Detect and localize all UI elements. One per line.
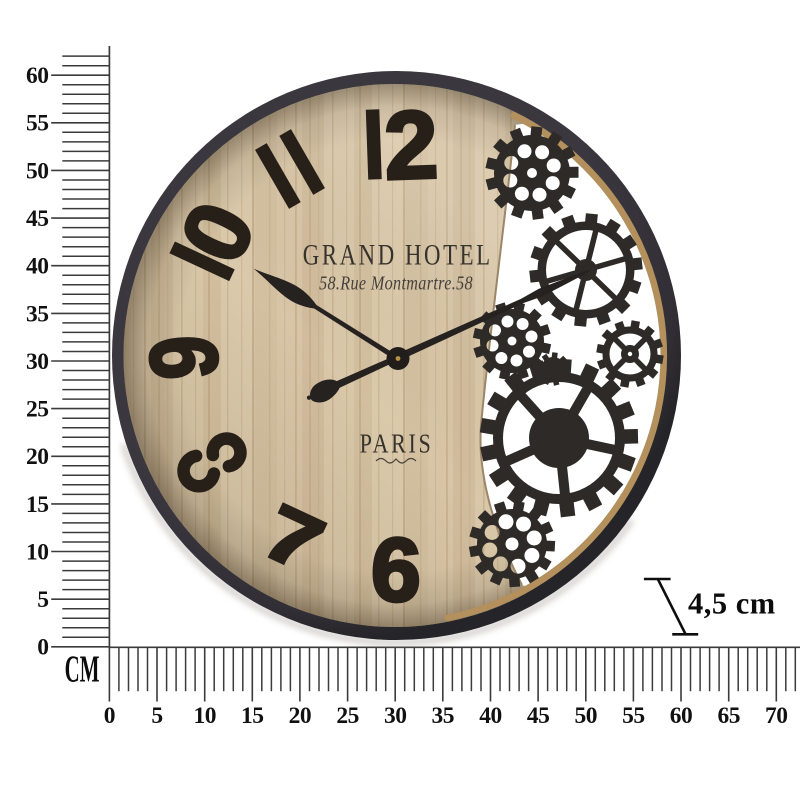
svg-text:35: 35 — [432, 703, 455, 729]
svg-text:40: 40 — [479, 703, 502, 729]
svg-text:4,5 cm: 4,5 cm — [688, 587, 776, 621]
svg-text:0: 0 — [37, 635, 48, 661]
svg-text:50: 50 — [26, 158, 49, 184]
svg-text:40: 40 — [26, 254, 49, 280]
svg-text:50: 50 — [575, 703, 598, 729]
svg-text:55: 55 — [622, 703, 645, 729]
svg-text:65: 65 — [717, 703, 740, 729]
svg-text:45: 45 — [26, 206, 49, 232]
svg-text:30: 30 — [384, 703, 407, 729]
svg-text:35: 35 — [26, 301, 49, 327]
svg-text:20: 20 — [26, 444, 49, 470]
svg-text:55: 55 — [26, 111, 49, 137]
svg-text:30: 30 — [26, 349, 49, 375]
svg-text:15: 15 — [26, 492, 49, 518]
svg-text:0: 0 — [104, 703, 115, 729]
svg-text:25: 25 — [26, 397, 49, 423]
svg-text:45: 45 — [527, 703, 550, 729]
svg-text:5: 5 — [151, 703, 162, 729]
svg-text:GRAND HOTEL: GRAND HOTEL — [303, 237, 493, 271]
svg-text:58.Rue Montmartre.58: 58.Rue Montmartre.58 — [319, 272, 473, 294]
svg-text:60: 60 — [670, 703, 693, 729]
svg-text:CM: CM — [65, 648, 100, 690]
svg-text:10: 10 — [26, 539, 49, 565]
svg-text:6: 6 — [369, 520, 423, 622]
svg-text:5: 5 — [37, 587, 48, 613]
svg-text:20: 20 — [289, 703, 312, 729]
svg-text:2: 2 — [383, 91, 440, 200]
svg-text:9: 9 — [130, 333, 238, 382]
svg-text:PARIS: PARIS — [360, 430, 434, 460]
svg-text:15: 15 — [241, 703, 264, 729]
svg-text:60: 60 — [26, 63, 49, 89]
svg-text:25: 25 — [336, 703, 359, 729]
svg-text:70: 70 — [765, 703, 788, 729]
svg-text:10: 10 — [193, 703, 216, 729]
